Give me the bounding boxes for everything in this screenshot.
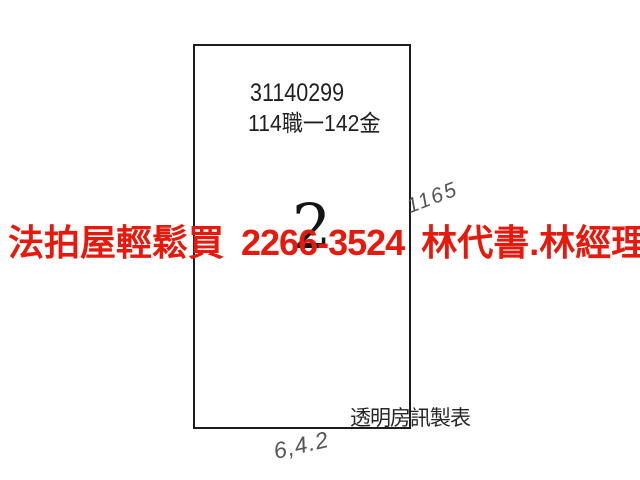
case-reference: 114職一142金 <box>248 104 381 138</box>
handwritten-note-bottom: 6,4.2 <box>271 426 332 465</box>
handwritten-note-top-right: 1165 <box>403 178 461 219</box>
watermark-ad: 法拍屋輕鬆買 2266-3524 林代書.林經理 <box>8 214 638 266</box>
publisher-credit: 透明房訊製表 <box>350 402 470 432</box>
watermark-phone-number: 2266-3524 <box>241 222 404 264</box>
watermark-contact-names: 林代書.林經理 <box>421 214 640 266</box>
watermark-agency-name: 法拍屋輕鬆買 <box>8 214 224 266</box>
